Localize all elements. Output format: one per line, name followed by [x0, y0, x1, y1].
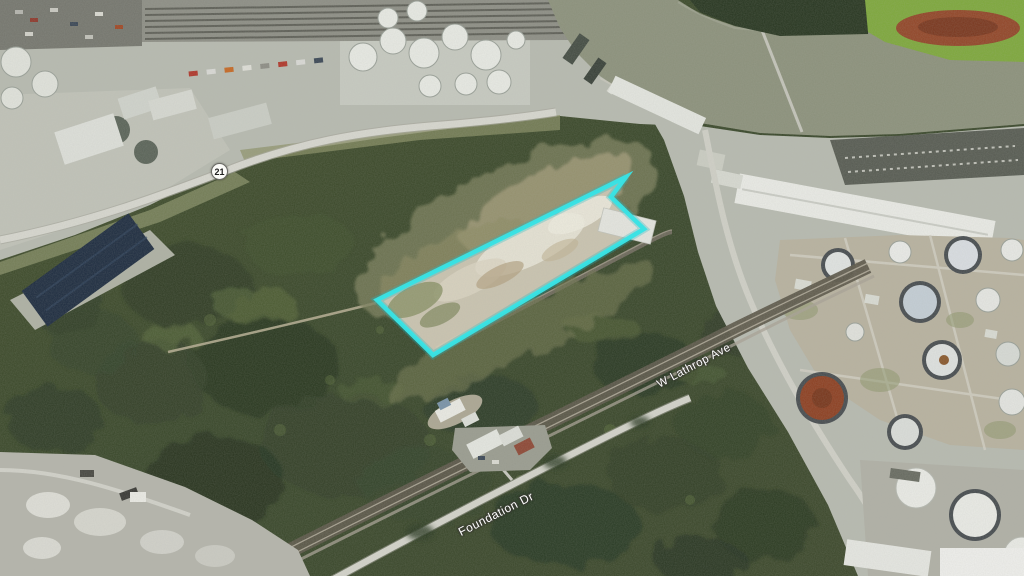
- photo-grain: [0, 0, 1024, 576]
- route-21-shield: 21: [211, 163, 228, 180]
- satellite-map[interactable]: 21 W Lathrop Ave Foundation Dr: [0, 0, 1024, 576]
- satellite-imagery: [0, 0, 1024, 576]
- route-shield-number: 21: [214, 167, 224, 177]
